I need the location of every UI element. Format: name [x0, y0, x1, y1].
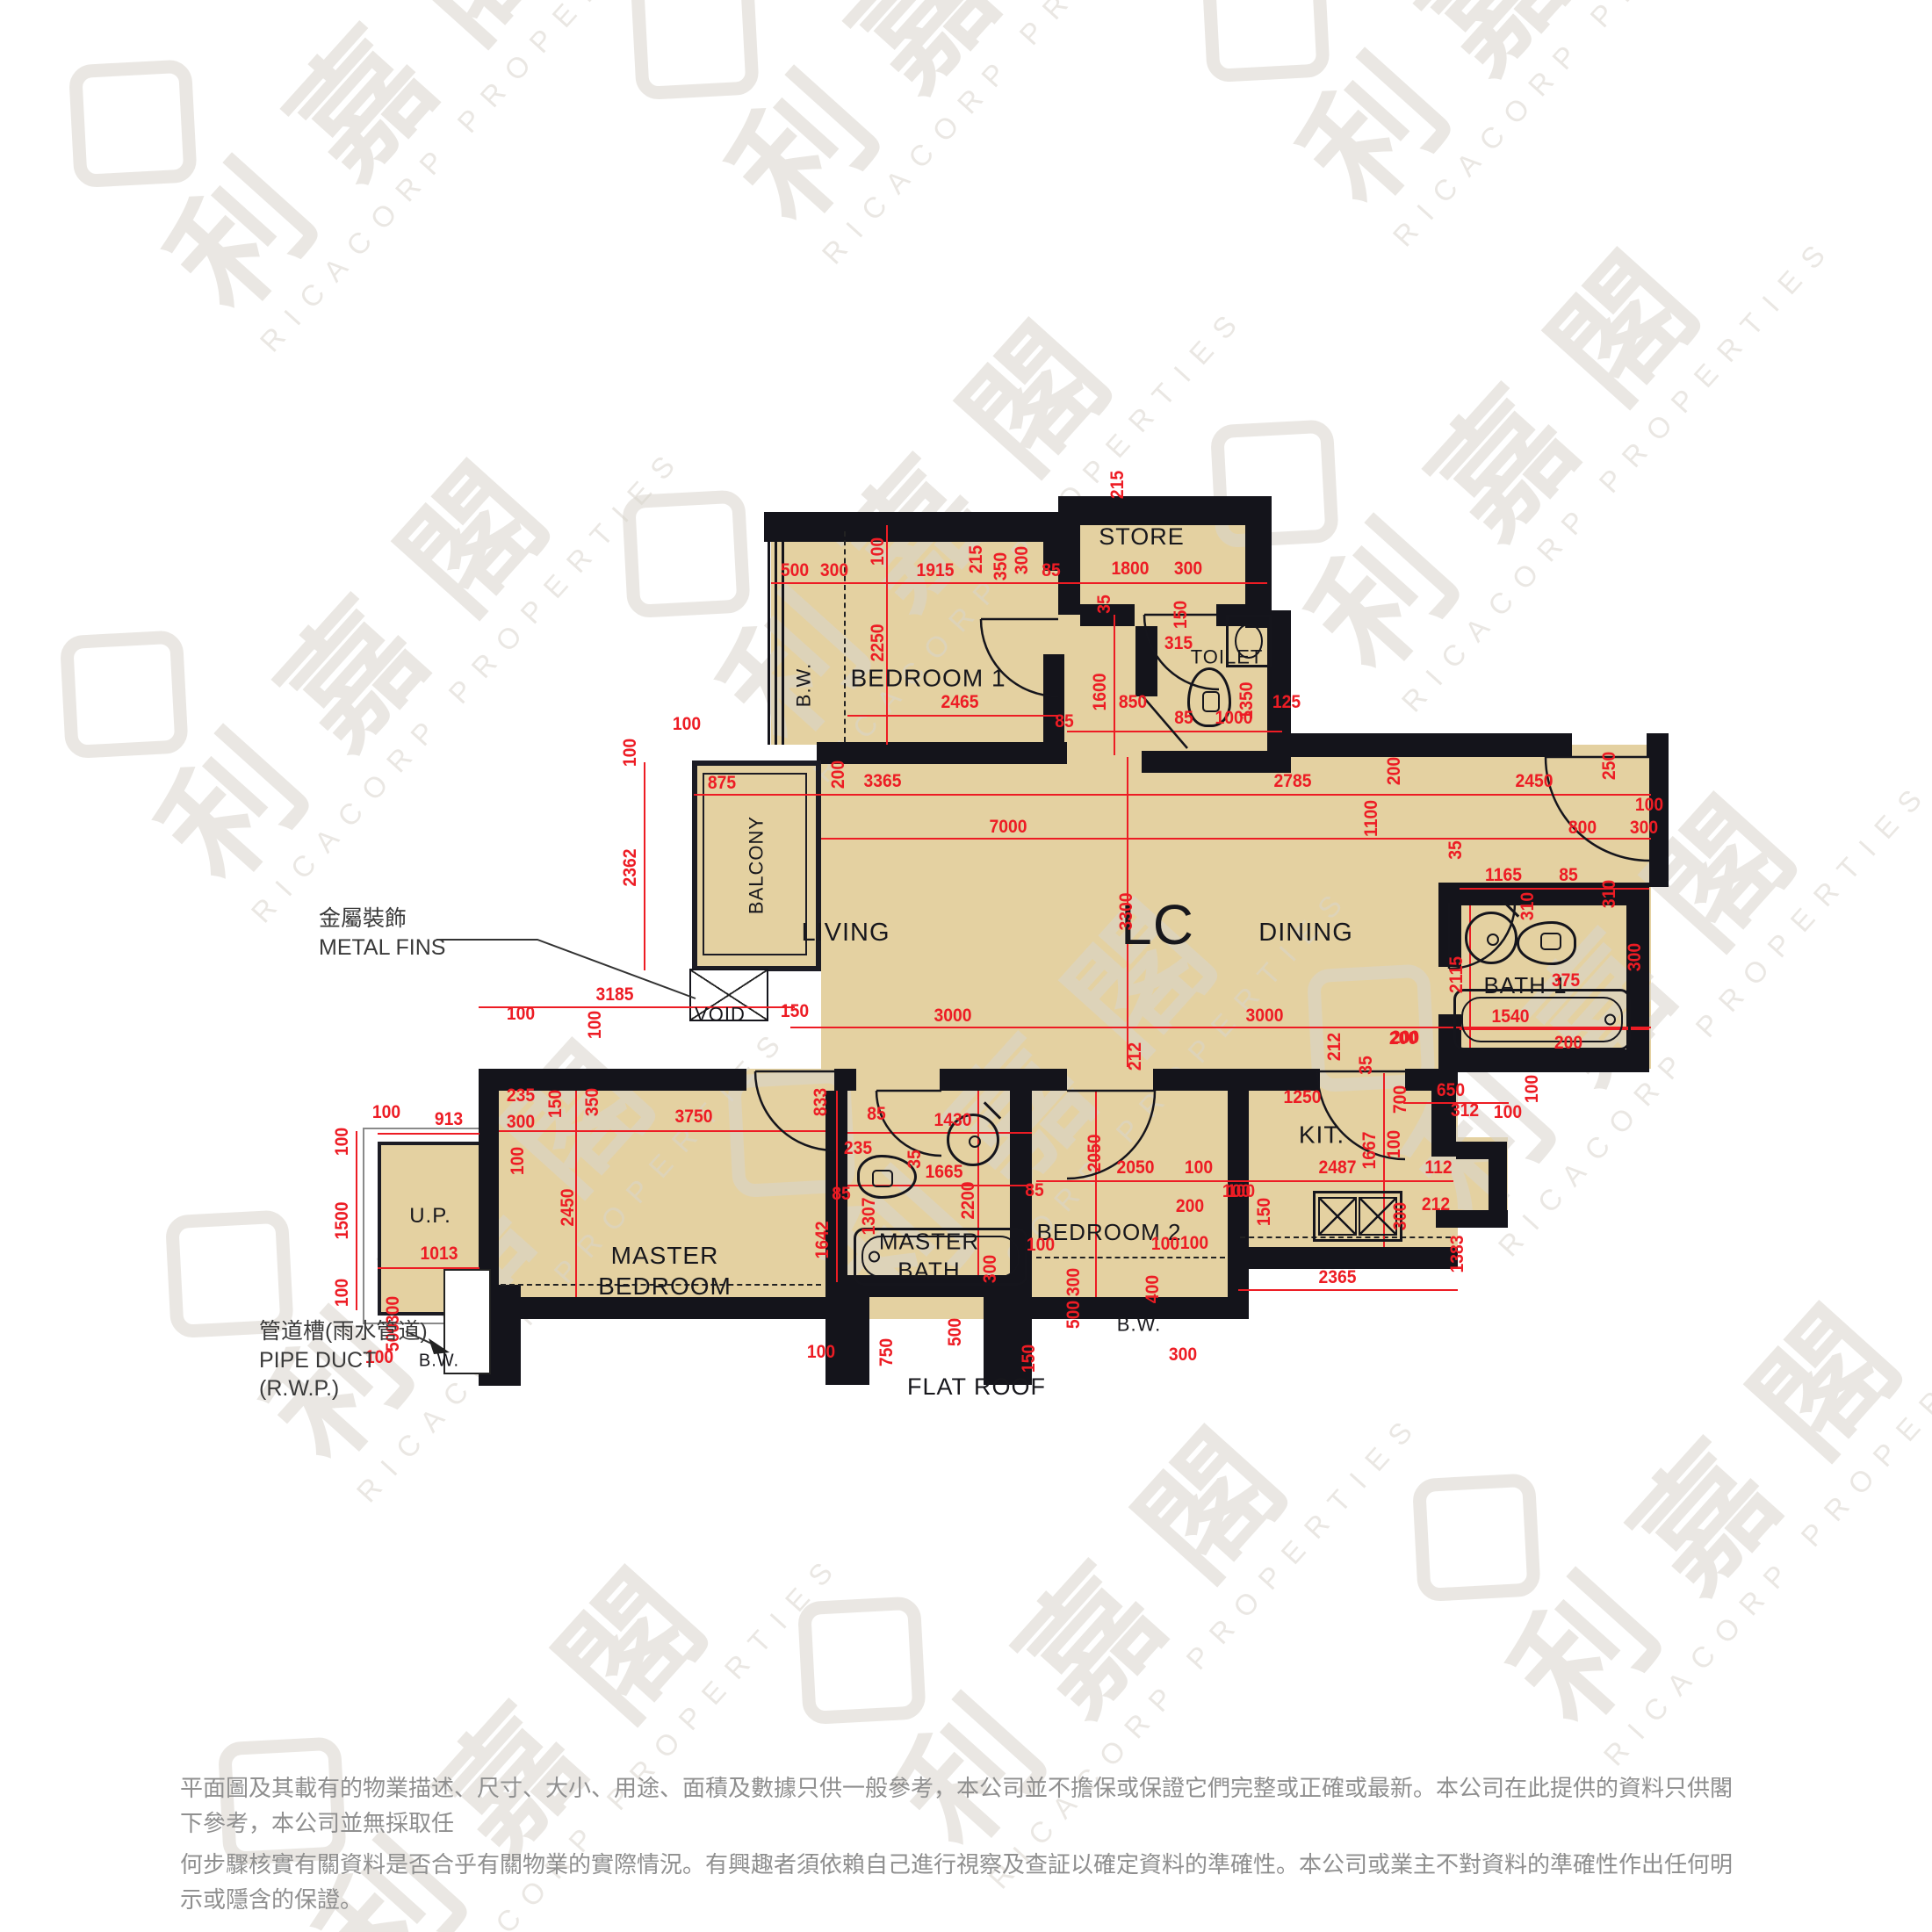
- dim-label: 1500: [332, 1202, 353, 1240]
- dim-label: 500: [781, 560, 809, 581]
- dim-label: 750: [876, 1338, 898, 1366]
- dim-label: 215: [966, 545, 987, 573]
- dim-label: 300: [1012, 546, 1033, 574]
- room-label-master-bath: MASTER BATH: [879, 1228, 979, 1285]
- disclaimer-zh-line1: 平面圖及其載有的物業描述、尺寸、大小、用途、面積及數據只供一般參考，本公司並不擔…: [180, 1770, 1752, 1842]
- dim-label: 85: [867, 1104, 885, 1125]
- dim-label: 1600: [1090, 674, 1111, 711]
- dim-label: 100: [372, 1102, 400, 1123]
- dim-label: 833: [811, 1088, 832, 1116]
- kitchen-sink-icon: [1313, 1191, 1402, 1242]
- dim-label: 150: [1019, 1344, 1040, 1373]
- dim-label: 150: [545, 1090, 566, 1118]
- dim-label: 1100: [1361, 800, 1382, 837]
- dim-label: 100: [1180, 1233, 1208, 1254]
- dim-label: 200: [1389, 1028, 1417, 1049]
- dim-label: 212: [1324, 1033, 1345, 1061]
- dim-label: 2365: [1319, 1267, 1357, 1288]
- dim-label: 913: [435, 1109, 463, 1130]
- dim-label: 200: [1554, 1033, 1582, 1054]
- dim-label: 300: [980, 1255, 1001, 1283]
- dim-label: 500: [1063, 1301, 1085, 1329]
- dim-label: 3185: [596, 984, 634, 1006]
- dim-label: 112: [1424, 1157, 1452, 1179]
- room-label-toilet: TOILET: [1191, 645, 1264, 669]
- pipe-duct-en: PIPE DUCT: [259, 1348, 376, 1373]
- dim-label: 1013: [421, 1244, 458, 1265]
- dim-label: 2200: [958, 1182, 979, 1220]
- dim-label: 100: [868, 537, 889, 566]
- dim-label: 150: [1254, 1198, 1275, 1226]
- dim-label: 1915: [917, 560, 955, 581]
- dim-label: 35: [905, 1150, 926, 1168]
- dim-label: 850: [1119, 692, 1147, 713]
- dim-label: 310: [1517, 892, 1539, 920]
- dim-label: 875: [708, 773, 736, 794]
- dim-label: 350: [991, 552, 1012, 580]
- dim-label: 100: [1522, 1075, 1543, 1103]
- dim-label: 100: [1151, 1234, 1179, 1255]
- dim-label: 100: [1027, 1235, 1055, 1256]
- room-label-up-platform: U.P.: [409, 1203, 451, 1229]
- dim-label: 1642: [812, 1222, 833, 1259]
- dim-label: 100: [585, 1011, 606, 1039]
- dim-label: 35: [1445, 840, 1467, 859]
- dim-label: 350: [582, 1088, 603, 1116]
- dim-label: 1350: [1236, 682, 1258, 720]
- dim-label: 100: [1494, 1102, 1522, 1123]
- room-label-store: STORE: [1099, 523, 1185, 552]
- dim-label: 125: [1272, 692, 1301, 713]
- disclaimer-zh-line2: 何步驟核實有關資料是否合乎有關物業的實際情況。有興趣者須依賴自己進行視察及查証以…: [180, 1847, 1752, 1918]
- dim-label: 3000: [934, 1006, 972, 1027]
- dim-label: 2785: [1274, 771, 1312, 792]
- dim-label: 400: [1143, 1275, 1164, 1303]
- disclaimer: 平面圖及其載有的物業描述、尺寸、大小、用途、面積及數據只供一般參考，本公司並不擔…: [180, 1770, 1752, 1932]
- room-label-master-bedroom: MASTER BEDROOM: [598, 1240, 732, 1301]
- dim-label: 85: [832, 1184, 850, 1205]
- dim-label: 300: [820, 560, 848, 581]
- dim-label: 800: [1568, 818, 1597, 839]
- dim-label: 85: [1559, 865, 1577, 886]
- metal-fins-label: 金屬裝飾 METAL FINS: [319, 905, 445, 962]
- dim-label: 2115: [1446, 956, 1467, 993]
- dim-label: 85: [1025, 1180, 1043, 1201]
- dim-label: 312: [1451, 1100, 1479, 1121]
- metal-fins-cn: 金屬裝飾: [319, 906, 407, 931]
- dim-label: 100: [1384, 1130, 1405, 1158]
- dim-label: 300: [1063, 1268, 1085, 1296]
- dim-label: 85: [1174, 708, 1193, 729]
- dim-label: 235: [844, 1138, 872, 1159]
- dim-label: 100: [1222, 1181, 1251, 1202]
- dim-label: 300: [1169, 1344, 1197, 1366]
- dim-label: 300: [1630, 818, 1658, 839]
- dim-label: 300: [1625, 943, 1646, 971]
- room-label-kitchen: KIT.: [1299, 1120, 1344, 1150]
- dim-label: 100: [332, 1128, 353, 1156]
- disclaimer-en: Floor plans and the description, measure…: [180, 1928, 1752, 1932]
- dim-label: 1430: [934, 1110, 972, 1131]
- dim-label: 100: [1635, 795, 1663, 816]
- dim-label: 2487: [1319, 1157, 1357, 1179]
- dim-label: 2450: [1516, 771, 1554, 792]
- metal-fins-en: METAL FINS: [319, 935, 445, 960]
- dim-label: 7000: [990, 817, 1027, 838]
- dim-label: 650: [1437, 1080, 1465, 1101]
- dim-label: 215: [1107, 471, 1128, 499]
- dim-label: 235: [507, 1085, 535, 1107]
- dim-label: 300: [507, 1112, 535, 1133]
- dim-label: 3365: [864, 771, 902, 792]
- dim-label: 310: [1599, 880, 1620, 908]
- dim-label: 300: [1174, 559, 1202, 580]
- dim-label: 1665: [926, 1162, 963, 1183]
- room-label-bedroom-1: BEDROOM 1: [850, 663, 1006, 694]
- dim-label: 212: [1422, 1194, 1450, 1215]
- dim-label: 212: [1125, 1042, 1146, 1071]
- dim-label: 300: [1390, 1202, 1411, 1230]
- room-label-flat-roof: FLAT ROOF: [907, 1373, 1046, 1402]
- pipe-duct-en2: (R.W.P.): [259, 1376, 339, 1401]
- dim-label: 2450: [558, 1189, 579, 1227]
- dim-label: 85: [1055, 711, 1073, 732]
- pipe-duct-cn: 管道槽(雨水管道): [259, 1319, 428, 1344]
- sink-icon: [1465, 912, 1517, 964]
- dim-label: 35: [1356, 1056, 1377, 1074]
- dim-label: 1165: [1485, 865, 1522, 886]
- dim-label: 2465: [941, 692, 979, 713]
- dim-label: 250: [1599, 752, 1620, 780]
- pipe-duct-label: 管道槽(雨水管道) PIPE DUCT (R.W.P.): [259, 1317, 428, 1403]
- dim-label: 100: [673, 714, 701, 735]
- dim-label: 35: [1094, 595, 1115, 613]
- dim-label: 500: [945, 1318, 966, 1346]
- dim-label: 3750: [675, 1107, 713, 1128]
- dim-label: 100: [507, 1004, 535, 1025]
- dim-label: 1250: [1284, 1087, 1322, 1108]
- dim-label: 1307: [859, 1198, 880, 1236]
- dim-label: 2362: [620, 849, 641, 887]
- dim-label: 200: [828, 761, 849, 789]
- dim-label: 3000: [1246, 1006, 1284, 1027]
- dim-label: 200: [1176, 1196, 1204, 1217]
- dim-label: 315: [1164, 633, 1193, 654]
- dim-label: 1667: [1359, 1132, 1381, 1170]
- room-label-void: VOID: [695, 1002, 746, 1027]
- dim-label: 1540: [1492, 1006, 1530, 1027]
- dim-label: 375: [1552, 970, 1580, 991]
- dim-label: 100: [807, 1342, 835, 1363]
- dim-label: 1800: [1112, 559, 1150, 580]
- dim-label: 2250: [868, 624, 889, 662]
- dim-label: 3300: [1116, 893, 1137, 931]
- dim-label: 100: [332, 1279, 353, 1307]
- dim-label: 100: [620, 739, 641, 767]
- dim-label: 150: [781, 1001, 809, 1022]
- room-label-bw-bedroom-2: B.W.: [1117, 1312, 1161, 1337]
- dim-label: 85: [1042, 560, 1060, 581]
- room-label-living: LIVING: [801, 917, 890, 948]
- dim-label: 1383: [1447, 1236, 1468, 1273]
- dim-label: 150: [1171, 601, 1192, 629]
- floor-plan-page: 利嘉閣RICACORP PROPERTIES 利嘉閣RICACORP PROPE…: [0, 0, 1932, 1932]
- dim-label: 200: [1384, 757, 1405, 785]
- dim-label: 100: [508, 1147, 529, 1175]
- room-label-bw-bedroom-1: B.W.: [791, 663, 816, 707]
- dim-label: 2050: [1117, 1157, 1155, 1179]
- dim-label: 100: [1185, 1157, 1213, 1179]
- room-label-balcony: BALCONY: [744, 816, 768, 914]
- dim-label: 2050: [1085, 1135, 1106, 1172]
- dim-label: 700: [1390, 1085, 1411, 1114]
- room-label-dining: DINING: [1258, 917, 1353, 948]
